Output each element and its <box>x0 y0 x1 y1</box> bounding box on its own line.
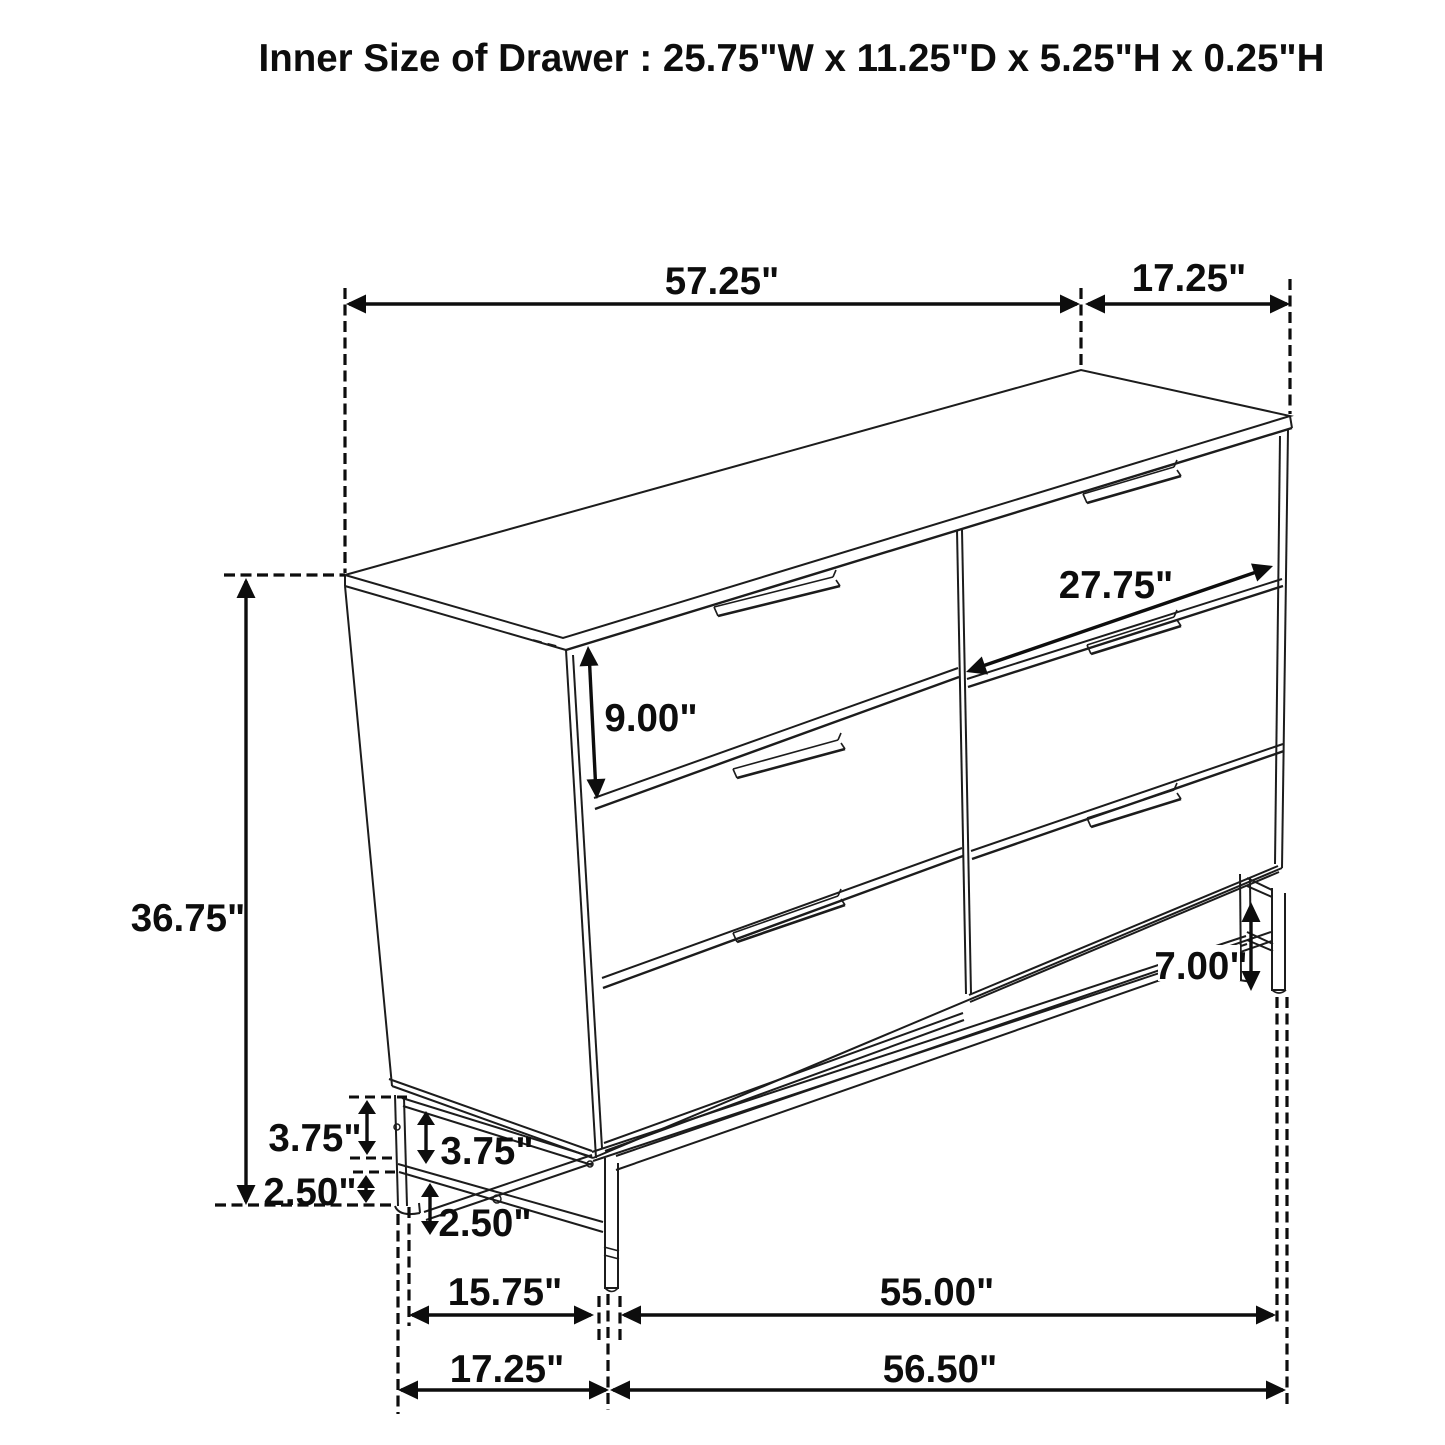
svg-text:3.75": 3.75" <box>440 1130 533 1173</box>
svg-text:15.75": 15.75" <box>448 1271 563 1314</box>
svg-text:17.25": 17.25" <box>1132 257 1247 300</box>
svg-text:7.00": 7.00" <box>1154 945 1247 988</box>
svg-text:36.75": 36.75" <box>131 897 246 940</box>
svg-text:27.75": 27.75" <box>1059 564 1174 607</box>
svg-text:9.00": 9.00" <box>604 697 697 740</box>
svg-text:56.50": 56.50" <box>883 1348 998 1391</box>
svg-text:2.50": 2.50" <box>263 1171 356 1214</box>
svg-text:55.00": 55.00" <box>880 1271 995 1314</box>
svg-text:2.50": 2.50" <box>438 1202 531 1245</box>
svg-text:3.75": 3.75" <box>268 1117 361 1160</box>
svg-text:17.25": 17.25" <box>450 1348 565 1391</box>
svg-text:57.25": 57.25" <box>665 260 780 303</box>
